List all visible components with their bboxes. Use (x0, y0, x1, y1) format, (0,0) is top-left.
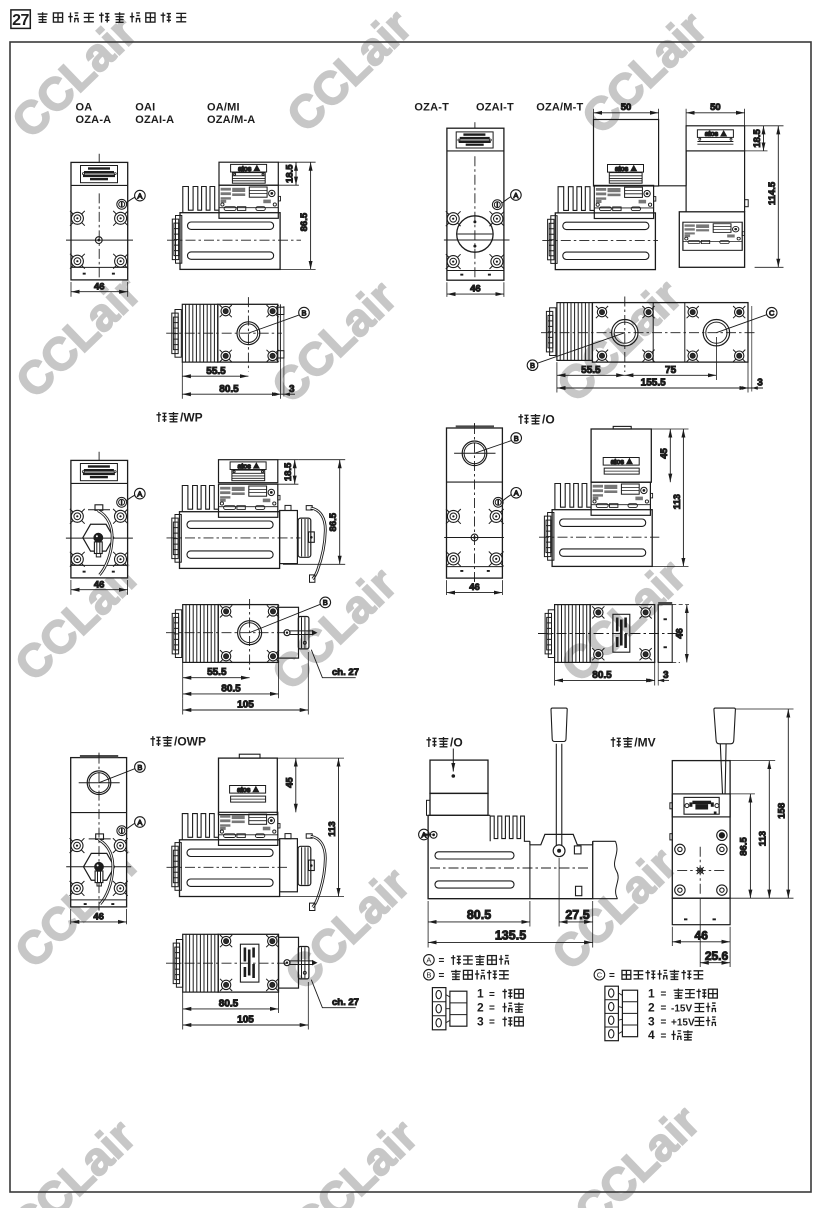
svg-text:46: 46 (469, 582, 480, 593)
svg-text:75: 75 (665, 365, 677, 376)
svg-text:113: 113 (672, 494, 683, 509)
svg-text:27: 27 (12, 12, 29, 29)
svg-text:1: 1 (648, 987, 655, 1001)
svg-text:46: 46 (470, 284, 481, 295)
svg-text:=: = (439, 956, 445, 967)
svg-text:80.5: 80.5 (221, 683, 241, 694)
svg-text:46: 46 (695, 928, 709, 942)
svg-text:18.5: 18.5 (283, 462, 294, 481)
svg-text:=: = (661, 1003, 667, 1014)
svg-text:OA/MI: OA/MI (207, 102, 240, 114)
svg-text:/OWP: /OWP (174, 735, 206, 749)
svg-text:OZA/M-T: OZA/M-T (536, 102, 583, 114)
svg-text:80.5: 80.5 (219, 384, 239, 395)
svg-text:3: 3 (289, 384, 295, 395)
svg-text:80.5: 80.5 (467, 908, 491, 922)
svg-text:/O: /O (450, 736, 463, 750)
svg-text:ch. 27: ch. 27 (332, 997, 359, 1008)
svg-text:OAI: OAI (135, 102, 155, 114)
svg-text:+15V: +15V (671, 1017, 695, 1028)
svg-text:46: 46 (675, 628, 686, 639)
svg-text:86.5: 86.5 (739, 837, 750, 856)
svg-text:OZAI-T: OZAI-T (476, 102, 514, 114)
svg-text:OZA-A: OZA-A (76, 114, 112, 126)
svg-text:155.5: 155.5 (641, 378, 666, 389)
svg-text:OZAI-A: OZAI-A (135, 114, 174, 126)
svg-text:55.5: 55.5 (581, 365, 601, 376)
svg-text:=: = (439, 971, 445, 982)
svg-text:OA: OA (76, 102, 93, 114)
svg-text:=: = (661, 989, 667, 1000)
svg-text:=: = (489, 989, 495, 1000)
svg-text:ch. 27: ch. 27 (332, 667, 359, 678)
svg-text:2: 2 (477, 1001, 484, 1015)
svg-text:46: 46 (94, 580, 105, 591)
svg-text:27.5: 27.5 (565, 908, 589, 922)
svg-text:105: 105 (237, 700, 254, 711)
svg-text:=: = (661, 1017, 667, 1028)
svg-text:113: 113 (758, 831, 769, 846)
svg-text:45: 45 (285, 777, 296, 788)
svg-text:55.5: 55.5 (207, 667, 227, 678)
svg-text:=: = (489, 1003, 495, 1014)
svg-text:OZA/M-A: OZA/M-A (207, 114, 255, 126)
svg-text:/WP: /WP (180, 411, 203, 425)
svg-text:46: 46 (94, 282, 105, 293)
svg-text:=: = (489, 1017, 495, 1028)
svg-text:135.5: 135.5 (495, 928, 526, 942)
svg-text:86.5: 86.5 (328, 512, 339, 531)
svg-text:114.5: 114.5 (767, 181, 778, 205)
svg-text:=: = (661, 1031, 667, 1042)
svg-text:55.5: 55.5 (206, 366, 226, 377)
svg-text:3: 3 (477, 1014, 484, 1028)
svg-text:50: 50 (621, 102, 632, 113)
svg-text:86.5: 86.5 (299, 212, 310, 231)
svg-text:105: 105 (237, 1015, 254, 1026)
svg-text:4: 4 (648, 1028, 655, 1042)
svg-text:18.5: 18.5 (752, 128, 763, 147)
svg-text:1: 1 (477, 987, 484, 1001)
svg-text:46: 46 (93, 911, 104, 922)
svg-text:113: 113 (327, 821, 338, 836)
svg-text:18.5: 18.5 (284, 164, 295, 183)
svg-text:3: 3 (663, 670, 669, 681)
svg-text:25.6: 25.6 (705, 949, 729, 963)
svg-text:50: 50 (710, 102, 721, 113)
svg-text:/O: /O (542, 413, 555, 427)
svg-text:80.5: 80.5 (219, 998, 239, 1009)
svg-text:158: 158 (777, 803, 788, 819)
svg-text:=: = (609, 971, 615, 982)
svg-text:-15V: -15V (671, 1003, 692, 1014)
svg-text:3: 3 (757, 378, 763, 389)
svg-text:80.5: 80.5 (592, 670, 612, 681)
svg-text:45: 45 (659, 448, 670, 459)
svg-text:/MV: /MV (634, 736, 655, 750)
svg-text:3: 3 (648, 1014, 655, 1028)
svg-text:OZA-T: OZA-T (414, 102, 449, 114)
svg-text:2: 2 (648, 1000, 655, 1014)
